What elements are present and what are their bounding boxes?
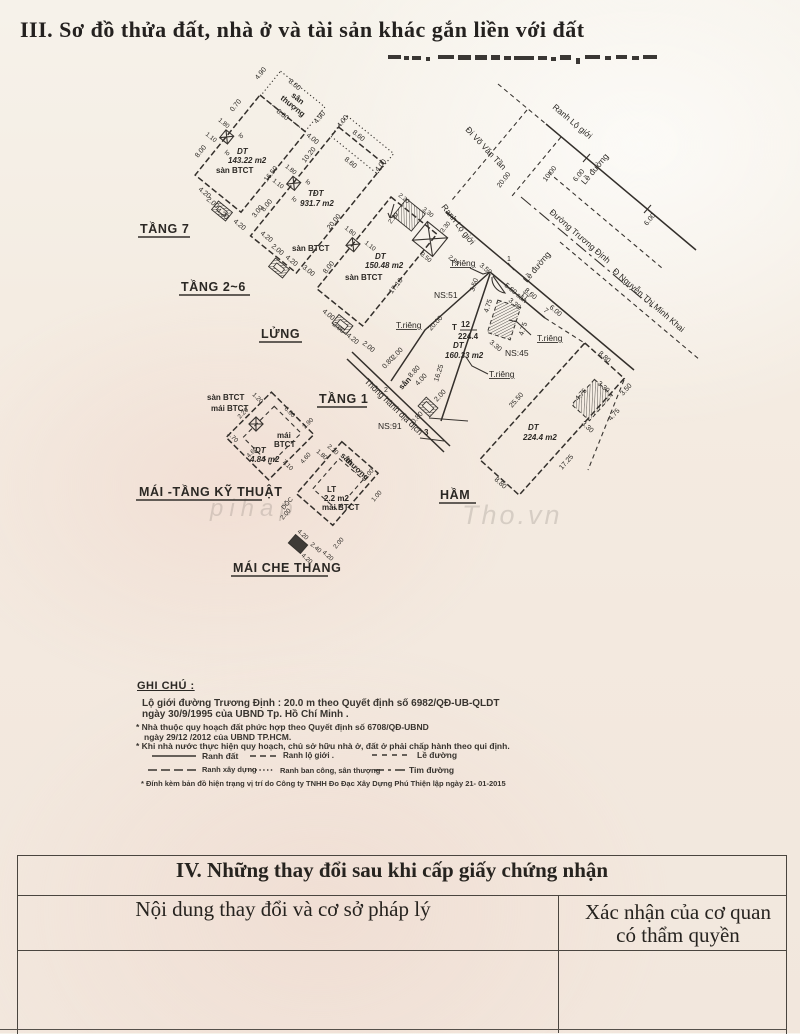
- svg-text:TẦNG 1: TẦNG 1: [319, 391, 368, 406]
- svg-text:TĐT: TĐT: [308, 189, 325, 198]
- svg-text:150.48 m2: 150.48 m2: [365, 261, 404, 270]
- svg-text:4.84 m2: 4.84 m2: [249, 455, 280, 464]
- svg-text:lo: lo: [304, 178, 313, 187]
- svg-text:3.50: 3.50: [419, 251, 433, 264]
- svg-text:2.00: 2.00: [361, 340, 376, 354]
- svg-text:1.00: 1.00: [370, 489, 384, 503]
- svg-text:4.75: 4.75: [607, 407, 621, 422]
- svg-text:6.60: 6.60: [283, 405, 297, 419]
- svg-text:8.80: 8.80: [493, 476, 508, 490]
- svg-text:4.00: 4.00: [374, 158, 388, 173]
- svg-text:4.20: 4.20: [259, 230, 274, 244]
- svg-text:4.60: 4.60: [299, 451, 313, 465]
- svg-text:1.10: 1.10: [271, 177, 285, 190]
- svg-text:3.00: 3.00: [301, 264, 316, 278]
- svg-text:TẦNG 7: TẦNG 7: [140, 221, 189, 236]
- svg-text:3.30: 3.30: [580, 420, 595, 434]
- svg-text:8.00: 8.00: [322, 260, 336, 275]
- svg-text:8.80: 8.80: [597, 350, 612, 364]
- svg-text:BTCT: BTCT: [274, 440, 295, 449]
- svg-text:224.4 m2: 224.4 m2: [522, 433, 557, 442]
- svg-text:NS:91: NS:91: [378, 421, 402, 431]
- svg-text:DT: DT: [453, 341, 465, 350]
- svg-text:6.00: 6.00: [643, 212, 657, 227]
- svg-text:4.75: 4.75: [518, 321, 529, 336]
- svg-text:4.20: 4.20: [232, 218, 247, 232]
- svg-text:16.25: 16.25: [433, 364, 445, 383]
- svg-text:4.75: 4.75: [483, 298, 494, 313]
- svg-text:1.80: 1.80: [343, 225, 357, 238]
- svg-text:12: 12: [461, 320, 470, 329]
- svg-text:25.50: 25.50: [508, 392, 525, 410]
- svg-text:7.10: 7.10: [281, 458, 295, 472]
- svg-text:8.60: 8.60: [287, 78, 302, 92]
- svg-text:HẦM: HẦM: [440, 487, 470, 502]
- svg-text:20.00: 20.00: [427, 315, 444, 333]
- svg-text:17.25: 17.25: [558, 454, 575, 472]
- svg-text:Tho.vn: Tho.vn: [462, 500, 563, 530]
- svg-text:Ranh Lộ giới: Ranh Lộ giới: [551, 102, 595, 141]
- svg-text:DT: DT: [237, 147, 249, 156]
- svg-text:10.00: 10.00: [542, 165, 558, 183]
- svg-text:2.90: 2.90: [301, 416, 315, 430]
- svg-text:Đ Nguyễn,Thị Minh Khai: Đ Nguyễn,Thị Minh Khai: [611, 266, 687, 334]
- svg-text:1.10: 1.10: [204, 131, 218, 144]
- svg-text:2: 2: [384, 387, 388, 394]
- svg-text:17.10: 17.10: [388, 277, 405, 295]
- svg-text:4.00: 4.00: [321, 308, 336, 322]
- svg-text:160.33 m2: 160.33 m2: [445, 351, 484, 360]
- svg-text:8.60: 8.60: [343, 156, 358, 170]
- svg-text:Đường Trương Định: Đường Trương Định: [548, 207, 613, 265]
- svg-text:NS:45: NS:45: [505, 348, 529, 358]
- svg-text:1.80: 1.80: [284, 163, 298, 176]
- svg-text:8.60: 8.60: [275, 108, 290, 122]
- svg-text:LỬNG: LỬNG: [261, 326, 300, 341]
- svg-text:Đi Võ Văn Tần: Đi Võ Văn Tần: [464, 125, 509, 172]
- svg-text:4.90: 4.90: [254, 66, 268, 81]
- svg-text:1.70: 1.70: [226, 430, 240, 444]
- svg-text:T.riêng: T.riêng: [537, 333, 563, 343]
- svg-text:TẦNG 2~6: TẦNG 2~6: [181, 279, 246, 294]
- svg-text:931.7 m2: 931.7 m2: [300, 199, 334, 208]
- svg-text:8.00: 8.00: [194, 144, 208, 159]
- svg-text:4.20: 4.20: [345, 332, 360, 346]
- svg-text:143.22 m2: 143.22 m2: [228, 156, 267, 165]
- svg-text:2.00: 2.00: [332, 536, 346, 550]
- svg-text:3: 3: [424, 428, 429, 437]
- svg-text:lo: lo: [237, 132, 246, 141]
- svg-text:LT: LT: [327, 485, 336, 494]
- svg-text:6.00: 6.00: [548, 304, 563, 318]
- svg-text:Lề đường: Lề đường: [521, 249, 553, 284]
- svg-text:2.2 m2: 2.2 m2: [324, 494, 349, 503]
- svg-text:sàn BTCT: sàn BTCT: [345, 273, 382, 282]
- svg-text:DT: DT: [375, 252, 387, 261]
- svg-text:MÁI CHE THANG: MÁI CHE THANG: [233, 560, 342, 575]
- svg-text:2.00: 2.00: [433, 389, 447, 404]
- svg-text:20.00: 20.00: [326, 213, 343, 231]
- svg-text:sàn BTCT: sàn BTCT: [292, 244, 329, 253]
- svg-text:sàn BTCT: sàn BTCT: [216, 166, 253, 175]
- svg-text:lo: lo: [290, 195, 299, 204]
- svg-text:T.riêng: T.riêng: [489, 369, 515, 379]
- svg-text:2.40: 2.40: [309, 541, 323, 555]
- svg-text:2.00: 2.00: [270, 243, 285, 257]
- svg-text:T.riêng: T.riêng: [396, 320, 422, 330]
- svg-text:1.80: 1.80: [217, 117, 231, 130]
- svg-text:sàn BTCT: sàn BTCT: [207, 393, 244, 402]
- svg-text:1.80: 1.80: [315, 448, 329, 462]
- svg-text:8.60: 8.60: [351, 129, 366, 143]
- svg-text:3.50: 3.50: [619, 382, 633, 397]
- svg-text:DT: DT: [528, 423, 540, 432]
- svg-text:1: 1: [507, 256, 511, 263]
- svg-text:mái BTCT: mái BTCT: [322, 503, 359, 512]
- svg-text:0.70: 0.70: [229, 98, 243, 113]
- svg-text:T: T: [452, 323, 457, 332]
- svg-text:4.00: 4.00: [305, 132, 320, 146]
- svg-text:3.50: 3.50: [469, 277, 480, 292]
- svg-text:mái: mái: [277, 431, 291, 440]
- svg-text:4.90: 4.90: [313, 110, 327, 125]
- svg-text:3.30: 3.30: [488, 339, 503, 353]
- svg-text:8.00: 8.00: [260, 198, 274, 213]
- svg-text:MÁI -TẦNG KỸ THUẬT: MÁI -TẦNG KỸ THUẬT: [139, 484, 282, 499]
- svg-text:20.00: 20.00: [496, 171, 512, 189]
- svg-text:1.20: 1.20: [251, 391, 265, 405]
- svg-text:224.4: 224.4: [458, 332, 479, 341]
- svg-text:NS:51: NS:51: [434, 290, 458, 300]
